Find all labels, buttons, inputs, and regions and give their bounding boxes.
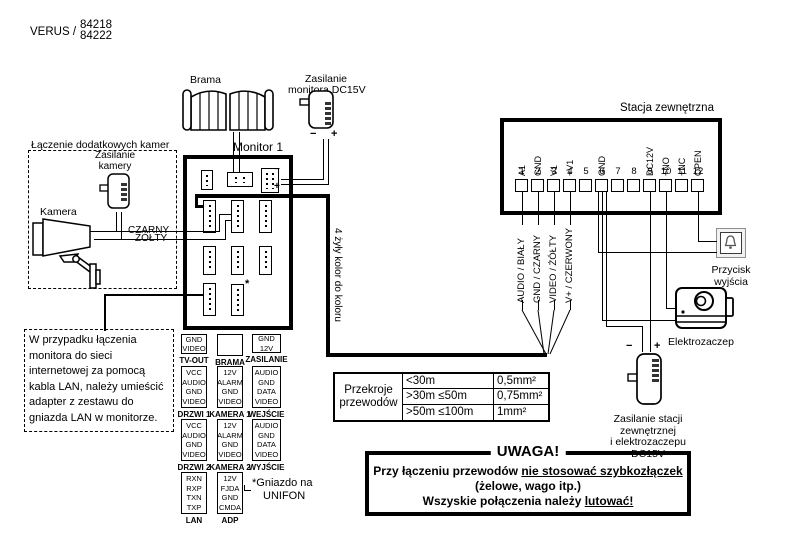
warning-line-3: Wszyskie połączenia należy lutować! [369, 494, 687, 509]
wire [522, 192, 523, 225]
wire [606, 326, 643, 327]
unifon-asterisk: * [245, 278, 249, 290]
wire [326, 353, 547, 357]
wire [538, 192, 539, 225]
terminal-label: +V1 [565, 160, 575, 176]
terminal-number: 5 [578, 166, 594, 177]
wire [195, 194, 330, 198]
camera-psu-icon [100, 173, 134, 213]
terminal-square [595, 179, 608, 192]
station-psu-plus: + [654, 340, 660, 352]
terminal-square [627, 179, 640, 192]
pin-label: 12V [260, 344, 273, 354]
pin-label: GND [186, 440, 203, 450]
pin-label: RXP [186, 484, 201, 494]
cross-section-range: <30m [403, 374, 493, 389]
pin-label: ALARM [217, 431, 243, 441]
wire [219, 214, 220, 232]
wire [554, 300, 555, 310]
connector-table-adp: 12VFJDAGNDCMDA [217, 472, 243, 514]
exit-button-icon [716, 228, 746, 258]
pin-label: VIDEO [218, 450, 241, 460]
connector-table-drzwi-1: VCCAUDIOGNDVIDEO [181, 366, 207, 408]
cross-section-value: 0,5mm² [493, 374, 548, 389]
pin-label: VIDEO [182, 397, 205, 407]
terminal-label: A1 [517, 165, 527, 176]
wire [666, 308, 677, 309]
connector-table-kamera-2: 12VALARMGNDVIDEO [217, 419, 243, 461]
terminal-label: +NC [677, 158, 687, 176]
terminal-number: 8 [626, 166, 642, 177]
warning-box: UWAGA! Przy łączeniu przewodów nie stoso… [365, 451, 691, 516]
wire [94, 239, 225, 240]
wire [233, 132, 234, 172]
terminal-label: GND [533, 156, 543, 176]
pin-label: VIDEO [182, 344, 205, 354]
monitor-conn-plus: + [274, 181, 280, 192]
pin-label: CMDA [219, 503, 241, 513]
wire-color-label: V+ / CZERWONY [564, 228, 575, 303]
terminal-label: DC12V [645, 147, 655, 176]
wire [570, 192, 571, 225]
wiring-diagram: VERUS / 84218 84222 Brama Zasilanie moni… [0, 0, 796, 536]
terminal-label: +NO [661, 157, 671, 176]
wire [116, 212, 117, 232]
wire [666, 192, 667, 309]
pin-label: VIDEO [255, 397, 278, 407]
connector-name: WEJŚCIE [239, 410, 295, 419]
pin-label: AUDIO [182, 378, 206, 388]
terminal-label: OPEN [693, 150, 703, 176]
cross-section-table: Przekroje przewodów <30m0,5mm²>30m ≤50m0… [333, 372, 550, 422]
pin-label: VIDEO [182, 450, 205, 460]
cross-section-range: >30m ≤50m [403, 389, 493, 404]
terminal-square [611, 179, 624, 192]
wire [104, 294, 106, 331]
cable-note: 4 żyły kolor do koloru [332, 228, 343, 322]
wire [219, 214, 232, 215]
wire [121, 212, 122, 240]
station-psu-minus: − [626, 340, 632, 352]
pin-label: GND [258, 334, 275, 344]
wire [698, 192, 699, 242]
pin-label: 12V [223, 474, 236, 484]
pin-label: AUDIO [255, 368, 279, 378]
pin-label: 12V [223, 421, 236, 431]
wire [602, 192, 603, 321]
wire [239, 132, 240, 172]
terminal-square [579, 179, 592, 192]
pin-label: ALARM [217, 378, 243, 388]
pin-label: VCC [186, 421, 202, 431]
bell-icon [722, 234, 739, 251]
monitor-connector-block [227, 172, 253, 187]
header: VERUS / 84218 84222 [30, 20, 112, 41]
terminal-square [547, 179, 560, 192]
wire [606, 192, 607, 327]
warning-line-2: (żelowe, wago itp.) [369, 479, 687, 494]
wire [225, 220, 226, 240]
terminal-square [659, 179, 672, 192]
wire [225, 220, 232, 221]
wire [538, 300, 539, 310]
model-number-2: 84222 [80, 31, 112, 42]
pin-label: GND [186, 335, 203, 345]
wire [326, 194, 330, 357]
wire [323, 139, 324, 180]
pin-label: 12V [223, 368, 236, 378]
monitor-psu-minus: − [310, 128, 316, 140]
gate-icon [182, 84, 274, 132]
terminal-square [531, 179, 544, 192]
pin-label: GND [222, 440, 239, 450]
wire [642, 326, 643, 352]
warning-title: UWAGA! [491, 444, 566, 459]
terminal-label: GND [597, 156, 607, 176]
connector-table-tv-out: GNDVIDEO [181, 334, 207, 354]
terminal-square [643, 179, 656, 192]
terminal-square [563, 179, 576, 192]
power-adapter-icon [300, 90, 340, 130]
wire [698, 241, 717, 242]
pin-label: DATA [257, 387, 276, 397]
monitor-connector-block [231, 246, 244, 275]
pin-label: GND [222, 387, 239, 397]
wire-color-label: GND / CZARNY [532, 235, 543, 303]
monitor-connector-block [231, 200, 244, 233]
connector-table-brama [217, 334, 243, 356]
wire [195, 205, 204, 208]
terminal-number: 7 [610, 166, 626, 177]
wire [650, 192, 651, 352]
cross-section-range: >50m ≤100m [403, 405, 493, 420]
wire [281, 179, 324, 180]
station-title: Stacja zewnętrzna [620, 102, 714, 114]
camera-icon [30, 214, 122, 282]
pin-label: AUDIO [182, 431, 206, 441]
wire [570, 300, 571, 310]
terminal-square [515, 179, 528, 192]
connector-table-kamera-1: 12VALARMGNDVIDEO [217, 366, 243, 408]
connector-name: ADP [202, 516, 258, 525]
wire [104, 294, 204, 296]
wire-color-label: VIDEO / ŻÓŁTY [548, 235, 559, 303]
connector-name: ZASILANIE [239, 355, 295, 364]
monitor-connector-block [203, 200, 216, 233]
connector-table-zasilanie: GND12V [252, 334, 281, 353]
station-psu-icon [628, 352, 666, 410]
wire [522, 300, 523, 310]
monitor-connector-block [231, 284, 244, 316]
monitor-connector-block [203, 246, 216, 275]
pin-label: GND [258, 431, 275, 441]
wire [90, 231, 219, 232]
connector-table-wejście: AUDIOGNDDATAVIDEO [252, 366, 281, 408]
monitor-connector-block [201, 170, 213, 190]
brand-label: VERUS / [30, 20, 76, 41]
warning-line-1: Przy łączeniu przewodów nie stosować szy… [369, 464, 687, 479]
wire [554, 192, 555, 225]
cross-section-header: Przekroje przewodów [335, 374, 403, 420]
pin-label: TXN [187, 493, 202, 503]
connector-table-lan: RXNRXPTXNTXP [181, 472, 207, 514]
connector-name: WYJŚCIE [239, 463, 295, 472]
monitor-conn-minus: − [274, 164, 280, 175]
wire [328, 139, 329, 185]
pin-label: VCC [186, 368, 202, 378]
pin-label: VIDEO [255, 450, 278, 460]
monitor-connector-block [259, 246, 272, 275]
wire [602, 320, 677, 321]
pin-label: FJDA [221, 484, 240, 494]
pin-label: GND [258, 378, 275, 388]
electric-strike-icon [672, 282, 736, 334]
pin-label: GND [222, 493, 239, 503]
wire-color-label: AUDIO / BIAŁY [516, 238, 527, 303]
connector-table-drzwi-2: VCCAUDIOGNDVIDEO [181, 419, 207, 461]
pin-label: DATA [257, 440, 276, 450]
cross-section-value: 0,75mm² [493, 389, 548, 404]
pin-label: AUDIO [255, 421, 279, 431]
wire [598, 252, 717, 253]
unifon-note-line2: UNIFON [263, 490, 305, 502]
unifon-note-line1: *Gniazdo na [252, 477, 313, 489]
monitor-connector-block [203, 283, 216, 316]
lan-note-text: W przypadku łączenia monitora do sieci i… [29, 333, 169, 426]
model-number-1: 84218 [80, 20, 112, 31]
terminal-square [691, 179, 704, 192]
cross-section-value: 1mm² [493, 405, 548, 420]
camera-psu-label: Zasilanie kamery [85, 151, 145, 172]
terminal-label: V1 [549, 165, 559, 176]
pin-label: RXN [186, 474, 202, 484]
connector-table-wyjście: AUDIOGNDDATAVIDEO [252, 419, 281, 461]
pin-label: VIDEO [218, 397, 241, 407]
strike-label: Elektrozaczep [656, 336, 746, 348]
monitor-connector-block [259, 200, 272, 233]
terminal-square [675, 179, 688, 192]
wire [598, 192, 599, 253]
pin-label: GND [186, 387, 203, 397]
wire [244, 490, 251, 491]
pin-label: TXP [187, 503, 202, 513]
monitor-title: Monitor 1 [233, 140, 283, 154]
wire [281, 184, 329, 185]
monitor-psu-plus: + [331, 128, 337, 140]
